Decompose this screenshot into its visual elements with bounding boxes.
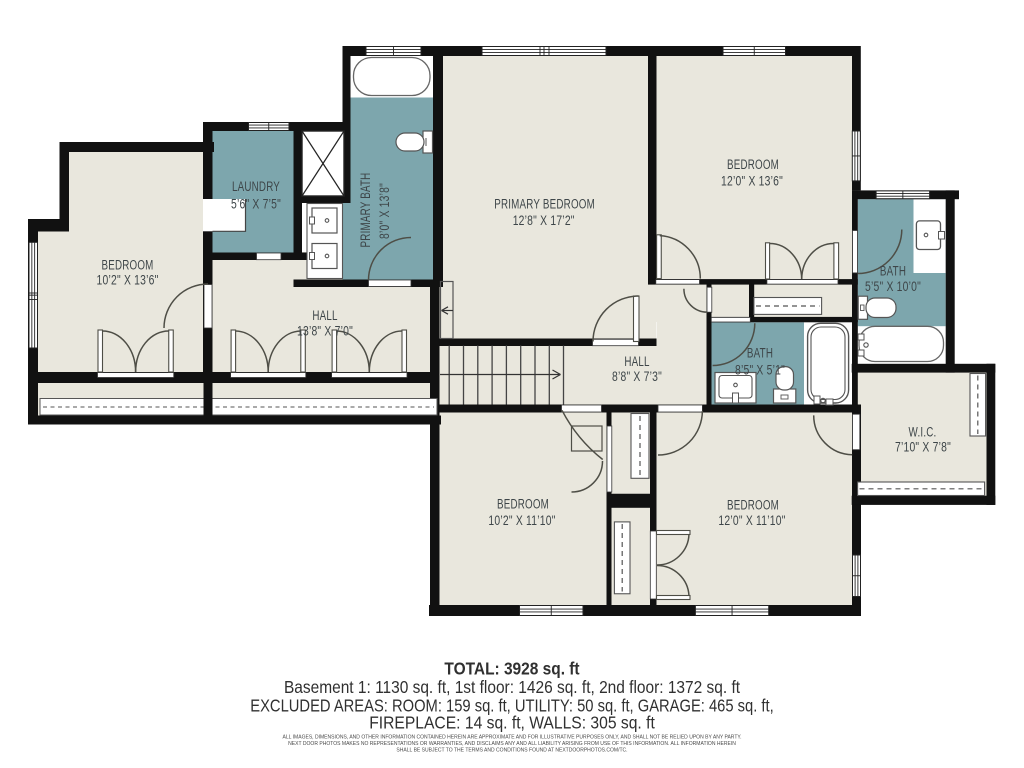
svg-text:BEDROOM: BEDROOM (497, 496, 549, 512)
svg-text:LAUNDRY: LAUNDRY (232, 178, 280, 194)
svg-text:8’8" X 7’3": 8’8" X 7’3" (612, 368, 662, 384)
svg-text:BATH: BATH (880, 263, 906, 279)
svg-text:Basement 1: 1130 sq. ft, 1st f: Basement 1: 1130 sq. ft, 1st floor: 1426… (284, 677, 740, 697)
svg-text:13’8" X 7’0": 13’8" X 7’0" (297, 323, 353, 339)
svg-text:BEDROOM: BEDROOM (727, 156, 779, 172)
svg-text:FIREPLACE: 14 sq. ft, WALLS: 3: FIREPLACE: 14 sq. ft, WALLS: 305 sq. ft (369, 712, 655, 732)
svg-text:SHALL BE SUBJECT TO THE TERMS: SHALL BE SUBJECT TO THE TERMS AND CONDIT… (396, 747, 627, 753)
svg-text:PRIMARY BEDROOM: PRIMARY BEDROOM (494, 196, 595, 212)
svg-text:BEDROOM: BEDROOM (727, 497, 779, 513)
svg-text:7’10" X 7’8": 7’10" X 7’8" (895, 439, 951, 455)
svg-text:PRIMARY BATH: PRIMARY BATH (357, 173, 373, 248)
svg-text:12’8" X 17’2": 12’8" X 17’2" (513, 212, 575, 228)
svg-text:8’0" X 13’8": 8’0" X 13’8" (376, 183, 392, 239)
svg-text:NEXT DOOR PHOTOS MAKES NO REPR: NEXT DOOR PHOTOS MAKES NO REPRESENTATION… (288, 741, 736, 747)
svg-text:HALL: HALL (312, 307, 337, 323)
svg-text:12’0" X 13’6": 12’0" X 13’6" (721, 173, 783, 189)
svg-text:8’5" X 5’1": 8’5" X 5’1" (735, 362, 785, 378)
svg-text:12’0" X 11’10": 12’0" X 11’10" (718, 512, 785, 528)
svg-text:BATH: BATH (747, 345, 773, 361)
svg-text:5’6" X 7’5": 5’6" X 7’5" (231, 196, 281, 212)
svg-text:10’2" X 13’6": 10’2" X 13’6" (96, 272, 158, 288)
svg-text:5’5" X 10’0": 5’5" X 10’0" (865, 278, 921, 294)
svg-text:HALL: HALL (624, 353, 649, 369)
svg-text:10’2" X 11’10": 10’2" X 11’10" (488, 512, 555, 528)
svg-text:TOTAL: 3928 sq. ft: TOTAL: 3928 sq. ft (444, 658, 580, 678)
svg-text:W.I.C.: W.I.C. (909, 424, 937, 440)
svg-text:ALL IMAGES, DIMENSIONS, AND OT: ALL IMAGES, DIMENSIONS, AND OTHER INFORM… (282, 734, 741, 740)
svg-text:BEDROOM: BEDROOM (101, 257, 153, 273)
